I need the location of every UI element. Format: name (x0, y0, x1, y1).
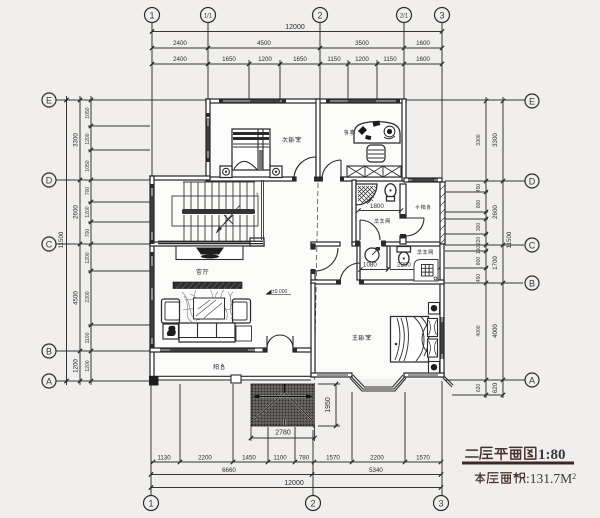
svg-text:1600: 1600 (416, 40, 430, 47)
svg-text:1/1: 1/1 (204, 14, 213, 20)
svg-text:1200: 1200 (85, 360, 91, 371)
svg-text:12000: 12000 (285, 24, 305, 31)
svg-text:E: E (46, 96, 52, 106)
svg-text:620: 620 (476, 384, 482, 393)
svg-text:B: B (46, 347, 52, 357)
svg-text:1950: 1950 (325, 397, 332, 413)
svg-text:1570: 1570 (416, 455, 430, 462)
svg-text:C: C (529, 241, 536, 251)
svg-text:1200: 1200 (85, 252, 91, 263)
svg-text:1650: 1650 (293, 56, 307, 63)
svg-text:2200: 2200 (370, 455, 384, 462)
svg-text:6660: 6660 (222, 467, 236, 474)
svg-text:220: 220 (476, 237, 482, 246)
svg-text:1200: 1200 (85, 206, 91, 217)
svg-text:3500: 3500 (355, 40, 369, 47)
svg-text:700: 700 (85, 187, 91, 196)
svg-text:11500: 11500 (506, 231, 513, 248)
svg-text:780: 780 (299, 455, 310, 462)
svg-text:12000: 12000 (284, 480, 304, 487)
svg-text:1570: 1570 (326, 455, 340, 462)
svg-text:800: 800 (476, 200, 482, 209)
svg-text:2400: 2400 (173, 40, 187, 47)
svg-text:E: E (529, 97, 535, 107)
svg-text:300: 300 (476, 223, 482, 232)
svg-text:2200: 2200 (397, 262, 411, 269)
svg-text:800: 800 (476, 257, 482, 266)
svg-text:C: C (46, 240, 53, 250)
svg-text:2200: 2200 (85, 291, 91, 302)
svg-text:620: 620 (492, 382, 499, 393)
svg-text:1150: 1150 (383, 56, 397, 63)
svg-text:1600: 1600 (416, 56, 430, 63)
svg-text:1050: 1050 (85, 160, 91, 171)
svg-text:700: 700 (85, 229, 91, 238)
svg-text:1650: 1650 (222, 56, 236, 63)
svg-text:1200: 1200 (355, 56, 369, 63)
svg-text:D: D (46, 176, 53, 186)
svg-text:2: 2 (310, 499, 315, 509)
svg-text:3300: 3300 (73, 133, 80, 147)
svg-text:1200: 1200 (73, 359, 80, 373)
svg-text:1450: 1450 (242, 455, 256, 462)
svg-text:1130: 1130 (157, 455, 171, 462)
svg-text:150: 150 (476, 246, 482, 255)
svg-text:2600: 2600 (73, 205, 80, 219)
svg-text:2/1: 2/1 (400, 14, 409, 20)
svg-text:4000: 4000 (476, 325, 482, 336)
svg-text:2600: 2600 (492, 205, 499, 219)
svg-text:5340: 5340 (369, 467, 383, 474)
svg-text:2: 2 (317, 11, 322, 21)
svg-text:1150: 1150 (327, 56, 341, 63)
svg-text:2400: 2400 (173, 56, 187, 63)
svg-text:1100: 1100 (273, 455, 287, 462)
svg-text:4500: 4500 (257, 40, 271, 47)
svg-text:3: 3 (439, 11, 444, 21)
svg-text:1100: 1100 (85, 332, 91, 343)
svg-text:1: 1 (149, 11, 154, 21)
svg-text:450: 450 (476, 184, 482, 193)
svg-text:1050: 1050 (85, 107, 91, 118)
svg-text:1700: 1700 (492, 256, 499, 270)
svg-text:B: B (529, 279, 535, 289)
svg-text:3300: 3300 (492, 133, 499, 147)
svg-text:11500: 11500 (58, 231, 65, 248)
svg-text:1: 1 (148, 499, 153, 509)
svg-text:2200: 2200 (198, 455, 212, 462)
svg-text:3300: 3300 (476, 134, 482, 145)
svg-text:D: D (529, 177, 536, 187)
svg-text:A: A (46, 377, 52, 387)
svg-text:2780: 2780 (275, 430, 291, 437)
svg-text:A: A (529, 376, 535, 386)
svg-text::131.7M2: :131.7M2 (526, 471, 576, 486)
svg-text:1:80: 1:80 (538, 447, 566, 463)
svg-text:1200: 1200 (85, 133, 91, 144)
svg-text:450: 450 (476, 274, 482, 283)
svg-text:4000: 4000 (492, 324, 499, 338)
svg-text:4500: 4500 (73, 291, 80, 305)
svg-text:±0.000: ±0.000 (272, 289, 287, 295)
svg-text:1800: 1800 (370, 203, 384, 210)
svg-text:3: 3 (438, 499, 443, 509)
svg-text:1080: 1080 (363, 262, 377, 269)
svg-text:1200: 1200 (258, 56, 272, 63)
